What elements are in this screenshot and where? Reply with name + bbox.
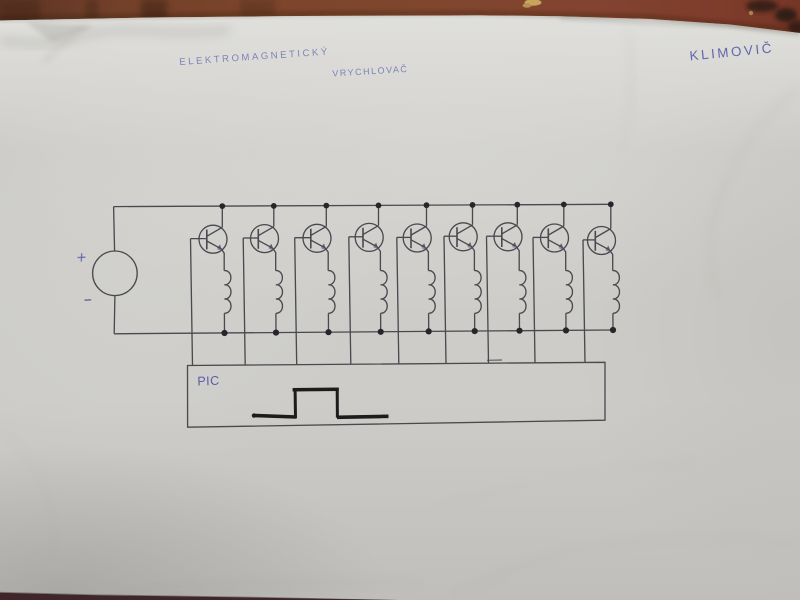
- svg-text:PIC: PIC: [197, 374, 220, 389]
